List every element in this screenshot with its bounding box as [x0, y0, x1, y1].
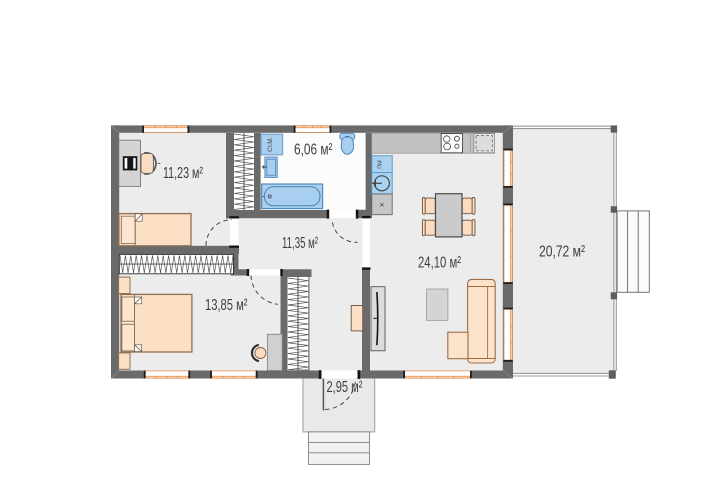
- svg-text:11,23 м²: 11,23 м²: [163, 165, 203, 182]
- svg-text:×: ×: [379, 200, 384, 210]
- svg-text:Ст.М.: Ст.М.: [268, 137, 274, 152]
- svg-text:6,06 м²: 6,06 м²: [294, 142, 333, 159]
- svg-text:20,72 м²: 20,72 м²: [539, 243, 586, 260]
- svg-text:24,10 м²: 24,10 м²: [418, 255, 461, 272]
- svg-text:13,85 м²: 13,85 м²: [205, 297, 248, 314]
- svg-text:2,95 м²: 2,95 м²: [327, 379, 363, 396]
- svg-text:ПМ: ПМ: [377, 160, 383, 169]
- svg-text:11,35 м²: 11,35 м²: [282, 235, 318, 252]
